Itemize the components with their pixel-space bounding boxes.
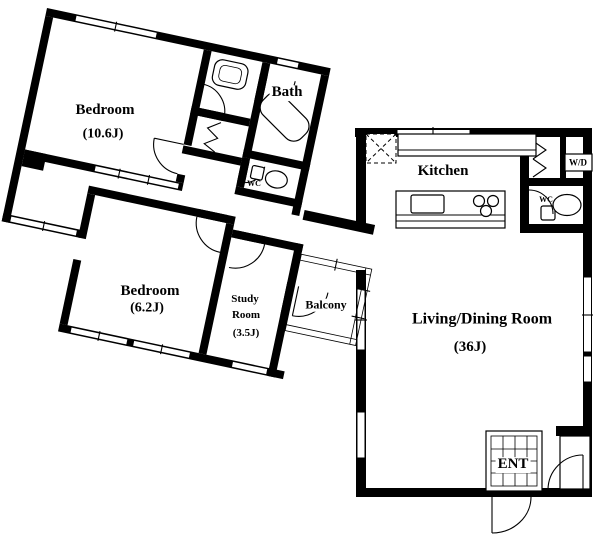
label-wc-bath-side: WC [245, 180, 263, 188]
label-bedroom-large: Bedroom [74, 103, 137, 119]
floor-plan-drawing [0, 0, 600, 535]
wall [356, 128, 366, 230]
door-leaf [154, 138, 183, 144]
wall [529, 224, 592, 233]
label-living-dining-area: (36J) [452, 340, 489, 356]
right-wing [355, 127, 593, 533]
kitchen-counter [398, 134, 536, 156]
wall [556, 426, 592, 436]
label-bedroom-small-area: (6.2J) [128, 302, 166, 317]
door-opening [235, 230, 266, 244]
window [231, 361, 267, 374]
door-opening [520, 188, 529, 214]
wall [78, 193, 95, 239]
wall [529, 178, 592, 186]
toilet-bowl [264, 169, 289, 190]
label-bath: Bath [270, 85, 305, 101]
stove-burner [488, 196, 499, 207]
wall [234, 186, 302, 208]
washbasin [211, 58, 250, 91]
window [584, 356, 592, 382]
toilet-bowl [553, 195, 581, 216]
door-opening [196, 107, 225, 121]
sink [411, 195, 444, 213]
floor-plan: Bedroom (10.6J) Bath WC Bedroom (6.2J) S… [0, 0, 600, 535]
bifold-closet-door [203, 120, 221, 152]
wall [356, 488, 592, 497]
wall [182, 145, 242, 165]
label-study-2: Room [230, 310, 262, 322]
label-balcony: Balcony [303, 299, 348, 312]
door-arc [229, 238, 265, 274]
label-study-area: (3.5J) [231, 328, 262, 340]
door-arc [191, 217, 227, 253]
door-opening [197, 209, 228, 223]
label-study-1: Study [229, 294, 261, 306]
label-washer-dryer: W/D [567, 158, 589, 167]
label-bedroom-small: Bedroom [119, 284, 182, 300]
label-living-dining: Living/Dining Room [410, 312, 554, 329]
wall [2, 16, 53, 223]
wall [176, 174, 185, 183]
stove-burner [481, 206, 492, 217]
label-entrance: ENT [496, 457, 531, 473]
stove-burner [474, 196, 485, 207]
wall [60, 259, 82, 325]
entry-closet [560, 436, 590, 489]
tilted-wing [0, 7, 414, 394]
label-bedroom-large-area: (10.6J) [81, 128, 126, 143]
label-wc-kitchen-side: WC [537, 196, 555, 204]
label-kitchen: Kitchen [416, 164, 471, 180]
entry-door-arc [492, 497, 531, 533]
wall [184, 50, 212, 147]
window [357, 412, 365, 458]
